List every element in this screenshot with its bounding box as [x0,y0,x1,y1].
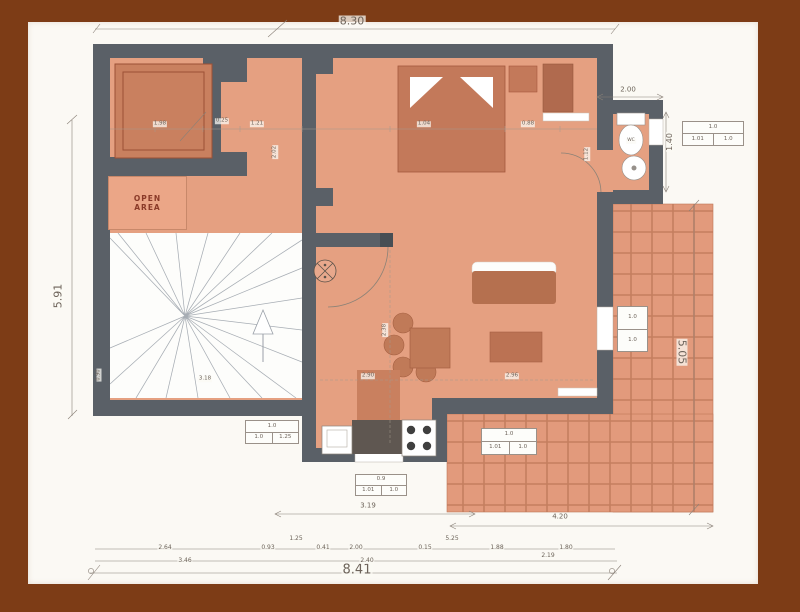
kitchen-island [357,370,400,420]
coffee-table [490,332,542,362]
dresser [543,113,589,121]
kitchen-sink [322,426,352,454]
double-bed [398,66,505,172]
nightstand [509,66,537,92]
floor-plan-drawing [0,0,800,612]
bath-window-opening [649,119,663,145]
chimney-symbol [314,260,336,282]
bath-sink [622,156,646,180]
staircase [110,233,302,398]
open-area-label: OPEN AREA [108,176,187,230]
open-area-line2: AREA [134,204,161,212]
kitchen-counter [352,420,402,454]
toilet [617,113,645,155]
floor-plan-page: OPEN AREA 8.305.915.058.414.203.192.001.… [0,0,800,612]
sofa [472,262,556,304]
page: { "palette": { "frame": "#7d3c16", "pape… [0,0,800,612]
wardrobe [543,64,573,112]
open-area-line1: OPEN [134,195,161,203]
terrace-door-bar [558,388,597,396]
living-window-opening [597,307,613,350]
bath-door-opening [597,150,613,192]
alcove-object [115,64,212,158]
stove [402,420,436,456]
